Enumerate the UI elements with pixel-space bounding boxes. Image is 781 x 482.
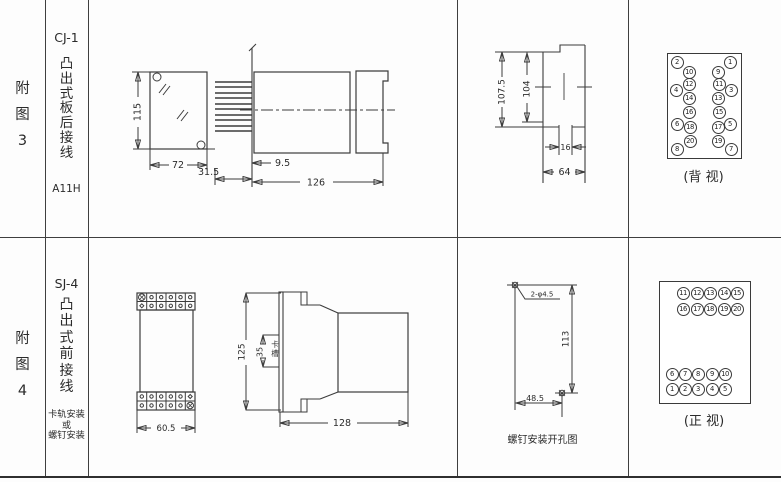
- dim-cutout-outer-height: 107.5: [498, 79, 508, 105]
- terminal-10: 10: [719, 368, 732, 381]
- terminal-15: 15: [731, 287, 744, 300]
- terminal-19: 19: [718, 303, 731, 316]
- table-bottom-border: [0, 476, 781, 478]
- terminal-18: 18: [684, 121, 697, 134]
- terminal-7: 7: [679, 368, 692, 381]
- terminal-8: 8: [671, 143, 684, 156]
- terminal-16: 16: [677, 303, 690, 316]
- sj4-front-view-drawing: 60.5: [130, 285, 208, 437]
- back-view-caption: (背 视): [663, 166, 744, 185]
- terminal-19: 19: [712, 135, 725, 148]
- terminal-6: 6: [671, 118, 684, 131]
- terminal-17: 17: [712, 121, 725, 134]
- terminal-4: 4: [706, 383, 719, 396]
- terminal-13: 13: [704, 287, 717, 300]
- terminal-8: 8: [692, 368, 705, 381]
- table-row-divider: [0, 237, 781, 238]
- terminal-2: 2: [671, 56, 684, 69]
- table-vline-3: [457, 0, 458, 477]
- terminal-7: 7: [725, 143, 738, 156]
- dim-sj4-slot-height: 35: [256, 347, 265, 357]
- cj1-panel-cutout-drawing: 107.5 104 16 64: [480, 35, 610, 187]
- figure4-type-label: 凸出式前接线: [45, 297, 88, 395]
- figure3-model: CJ-1: [45, 30, 88, 45]
- terminal-17: 17: [691, 303, 704, 316]
- dim-sj4-length: 128: [333, 418, 351, 429]
- terminal-11: 11: [677, 287, 690, 300]
- terminal-1: 1: [724, 56, 737, 69]
- dim-side-pin-length: 31.5: [198, 167, 219, 178]
- terminal-9: 9: [712, 66, 725, 79]
- dim-cutout-inner-height: 104: [523, 80, 533, 97]
- terminal-3: 3: [692, 383, 705, 396]
- terminal-5: 5: [724, 118, 737, 131]
- terminal-1: 1: [666, 383, 679, 396]
- terminal-2: 2: [679, 383, 692, 396]
- terminal-13: 13: [712, 92, 725, 105]
- terminal-10: 10: [683, 66, 696, 79]
- mount-note-line3: 螺钉安装: [45, 431, 88, 442]
- terminal-12: 12: [691, 287, 704, 300]
- terminal-14: 14: [718, 287, 731, 300]
- terminal-16: 16: [683, 106, 696, 119]
- figure-table-page: 附图3 CJ-1 凸出式板后接线 A11H 115 72 9: [0, 0, 781, 482]
- terminal-3: 3: [725, 84, 738, 97]
- back-terminal-panel: 2101241416618208191131315517197: [667, 53, 742, 159]
- figure4-model: SJ-4: [45, 276, 88, 291]
- dim-side-length: 126: [307, 178, 325, 189]
- terminal-12: 12: [683, 78, 696, 91]
- terminal-11: 11: [713, 78, 726, 91]
- terminal-14: 14: [683, 92, 696, 105]
- terminal-20: 20: [684, 135, 697, 148]
- terminal-9: 9: [706, 368, 719, 381]
- figure4-mount-notes: 卡轨安装 或 螺钉安装: [45, 410, 88, 442]
- terminal-4: 4: [670, 84, 683, 97]
- mount-note-line1: 卡轨安装: [45, 410, 88, 421]
- slot-label: 卡槽: [269, 341, 281, 358]
- terminal-5: 5: [719, 383, 732, 396]
- figure4-index: 附图4: [0, 326, 45, 404]
- dim-sj4-height: 125: [238, 343, 248, 360]
- terminal-18: 18: [704, 303, 717, 316]
- dim-side-offset: 9.5: [275, 158, 290, 169]
- dim-sj4-front-width: 60.5: [157, 424, 176, 434]
- terminal-15: 15: [713, 106, 726, 119]
- hole-size-label: 2-φ4.5: [531, 291, 554, 299]
- front-view-caption: (正 视): [659, 410, 749, 429]
- figure3-type-label: 凸出式板后接线: [45, 57, 88, 161]
- table-vline-4: [628, 0, 629, 477]
- terminal-6: 6: [666, 368, 679, 381]
- cj1-side-drawing: 9.5 31.5 126: [195, 35, 400, 187]
- figure3-index: 附图3: [0, 76, 45, 154]
- drill-diagram-caption: 螺钉安装开孔图: [495, 431, 590, 446]
- dim-cutout-slot-width: 16: [560, 143, 570, 152]
- terminal-20: 20: [731, 303, 744, 316]
- dim-front-width: 72: [172, 160, 184, 171]
- front-terminal-panel: 1112131415161718192067891012345: [659, 281, 751, 404]
- dim-cutout-width: 64: [558, 167, 570, 178]
- sj4-side-view-drawing: 125 35 128: [235, 285, 415, 437]
- dim-drill-vertical: 113: [562, 331, 572, 347]
- screw-mount-drill-drawing: 2-φ4.5 113 48.5: [495, 275, 607, 437]
- dim-front-height: 115: [133, 103, 144, 121]
- dim-drill-horizontal: 48.5: [526, 394, 544, 403]
- table-vline-2: [88, 0, 89, 477]
- figure3-code: A11H: [45, 183, 88, 195]
